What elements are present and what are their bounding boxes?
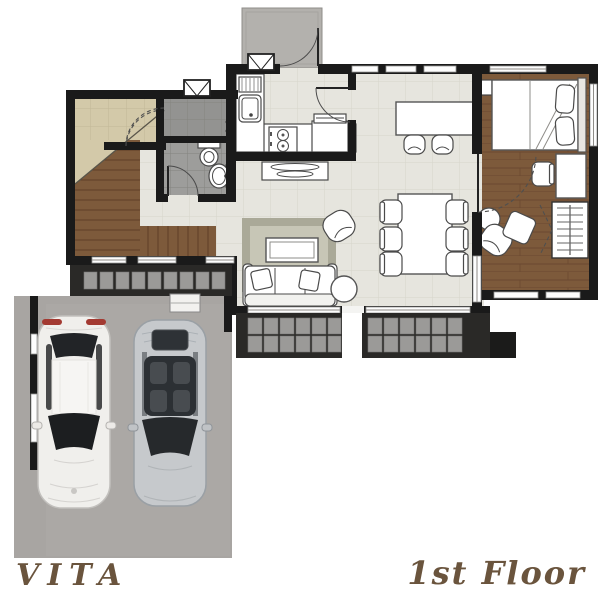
seat — [150, 390, 167, 412]
sofa-pillow — [298, 270, 320, 292]
toilet — [198, 140, 220, 166]
floor-label: 1st Floor — [407, 554, 586, 592]
dining-chair — [446, 252, 468, 276]
dining-chair — [446, 200, 468, 224]
dining-chair — [380, 227, 402, 251]
taillight — [42, 319, 62, 325]
desk — [556, 154, 586, 198]
silver-car — [128, 320, 212, 506]
dining-table — [398, 194, 452, 274]
side-mirror — [128, 424, 138, 431]
washing-machine — [312, 114, 348, 152]
taillight — [86, 319, 106, 325]
seat — [173, 362, 190, 384]
side-mirror — [106, 422, 116, 429]
dining-chair — [380, 252, 402, 276]
sunroof — [152, 330, 188, 350]
windshield — [48, 413, 100, 450]
floor-plan — [0, 0, 600, 600]
bar-stool — [432, 135, 453, 154]
headboard — [578, 78, 586, 152]
seat — [150, 362, 167, 384]
pillow — [555, 84, 575, 113]
front-walkway — [70, 265, 232, 300]
project-name-label: VITA — [16, 558, 129, 593]
dining-chair — [380, 200, 402, 224]
console-table — [262, 162, 328, 180]
awning-window-icon — [184, 80, 210, 96]
kitchen-sink — [239, 77, 261, 122]
awning-window-icon — [248, 54, 274, 70]
sofa — [243, 264, 337, 306]
stove — [269, 127, 297, 152]
walkway-pavers — [84, 272, 225, 289]
floor-plan-page: VITA 1st Floor — [0, 0, 600, 600]
pillow — [555, 116, 575, 145]
bed — [492, 78, 586, 152]
side-mirror — [32, 422, 42, 429]
rear-window — [50, 333, 98, 358]
dining-chair — [446, 227, 468, 251]
rear-deck — [236, 313, 516, 358]
sofa-pillow — [250, 268, 273, 291]
side-table — [331, 276, 357, 302]
seat — [173, 390, 190, 412]
bar-stool — [404, 135, 425, 154]
kitchen-island — [396, 102, 478, 135]
white-car — [32, 316, 116, 508]
windshield — [142, 417, 198, 456]
side-mirror — [202, 424, 212, 431]
garage — [14, 294, 232, 558]
entry-step — [170, 294, 200, 312]
